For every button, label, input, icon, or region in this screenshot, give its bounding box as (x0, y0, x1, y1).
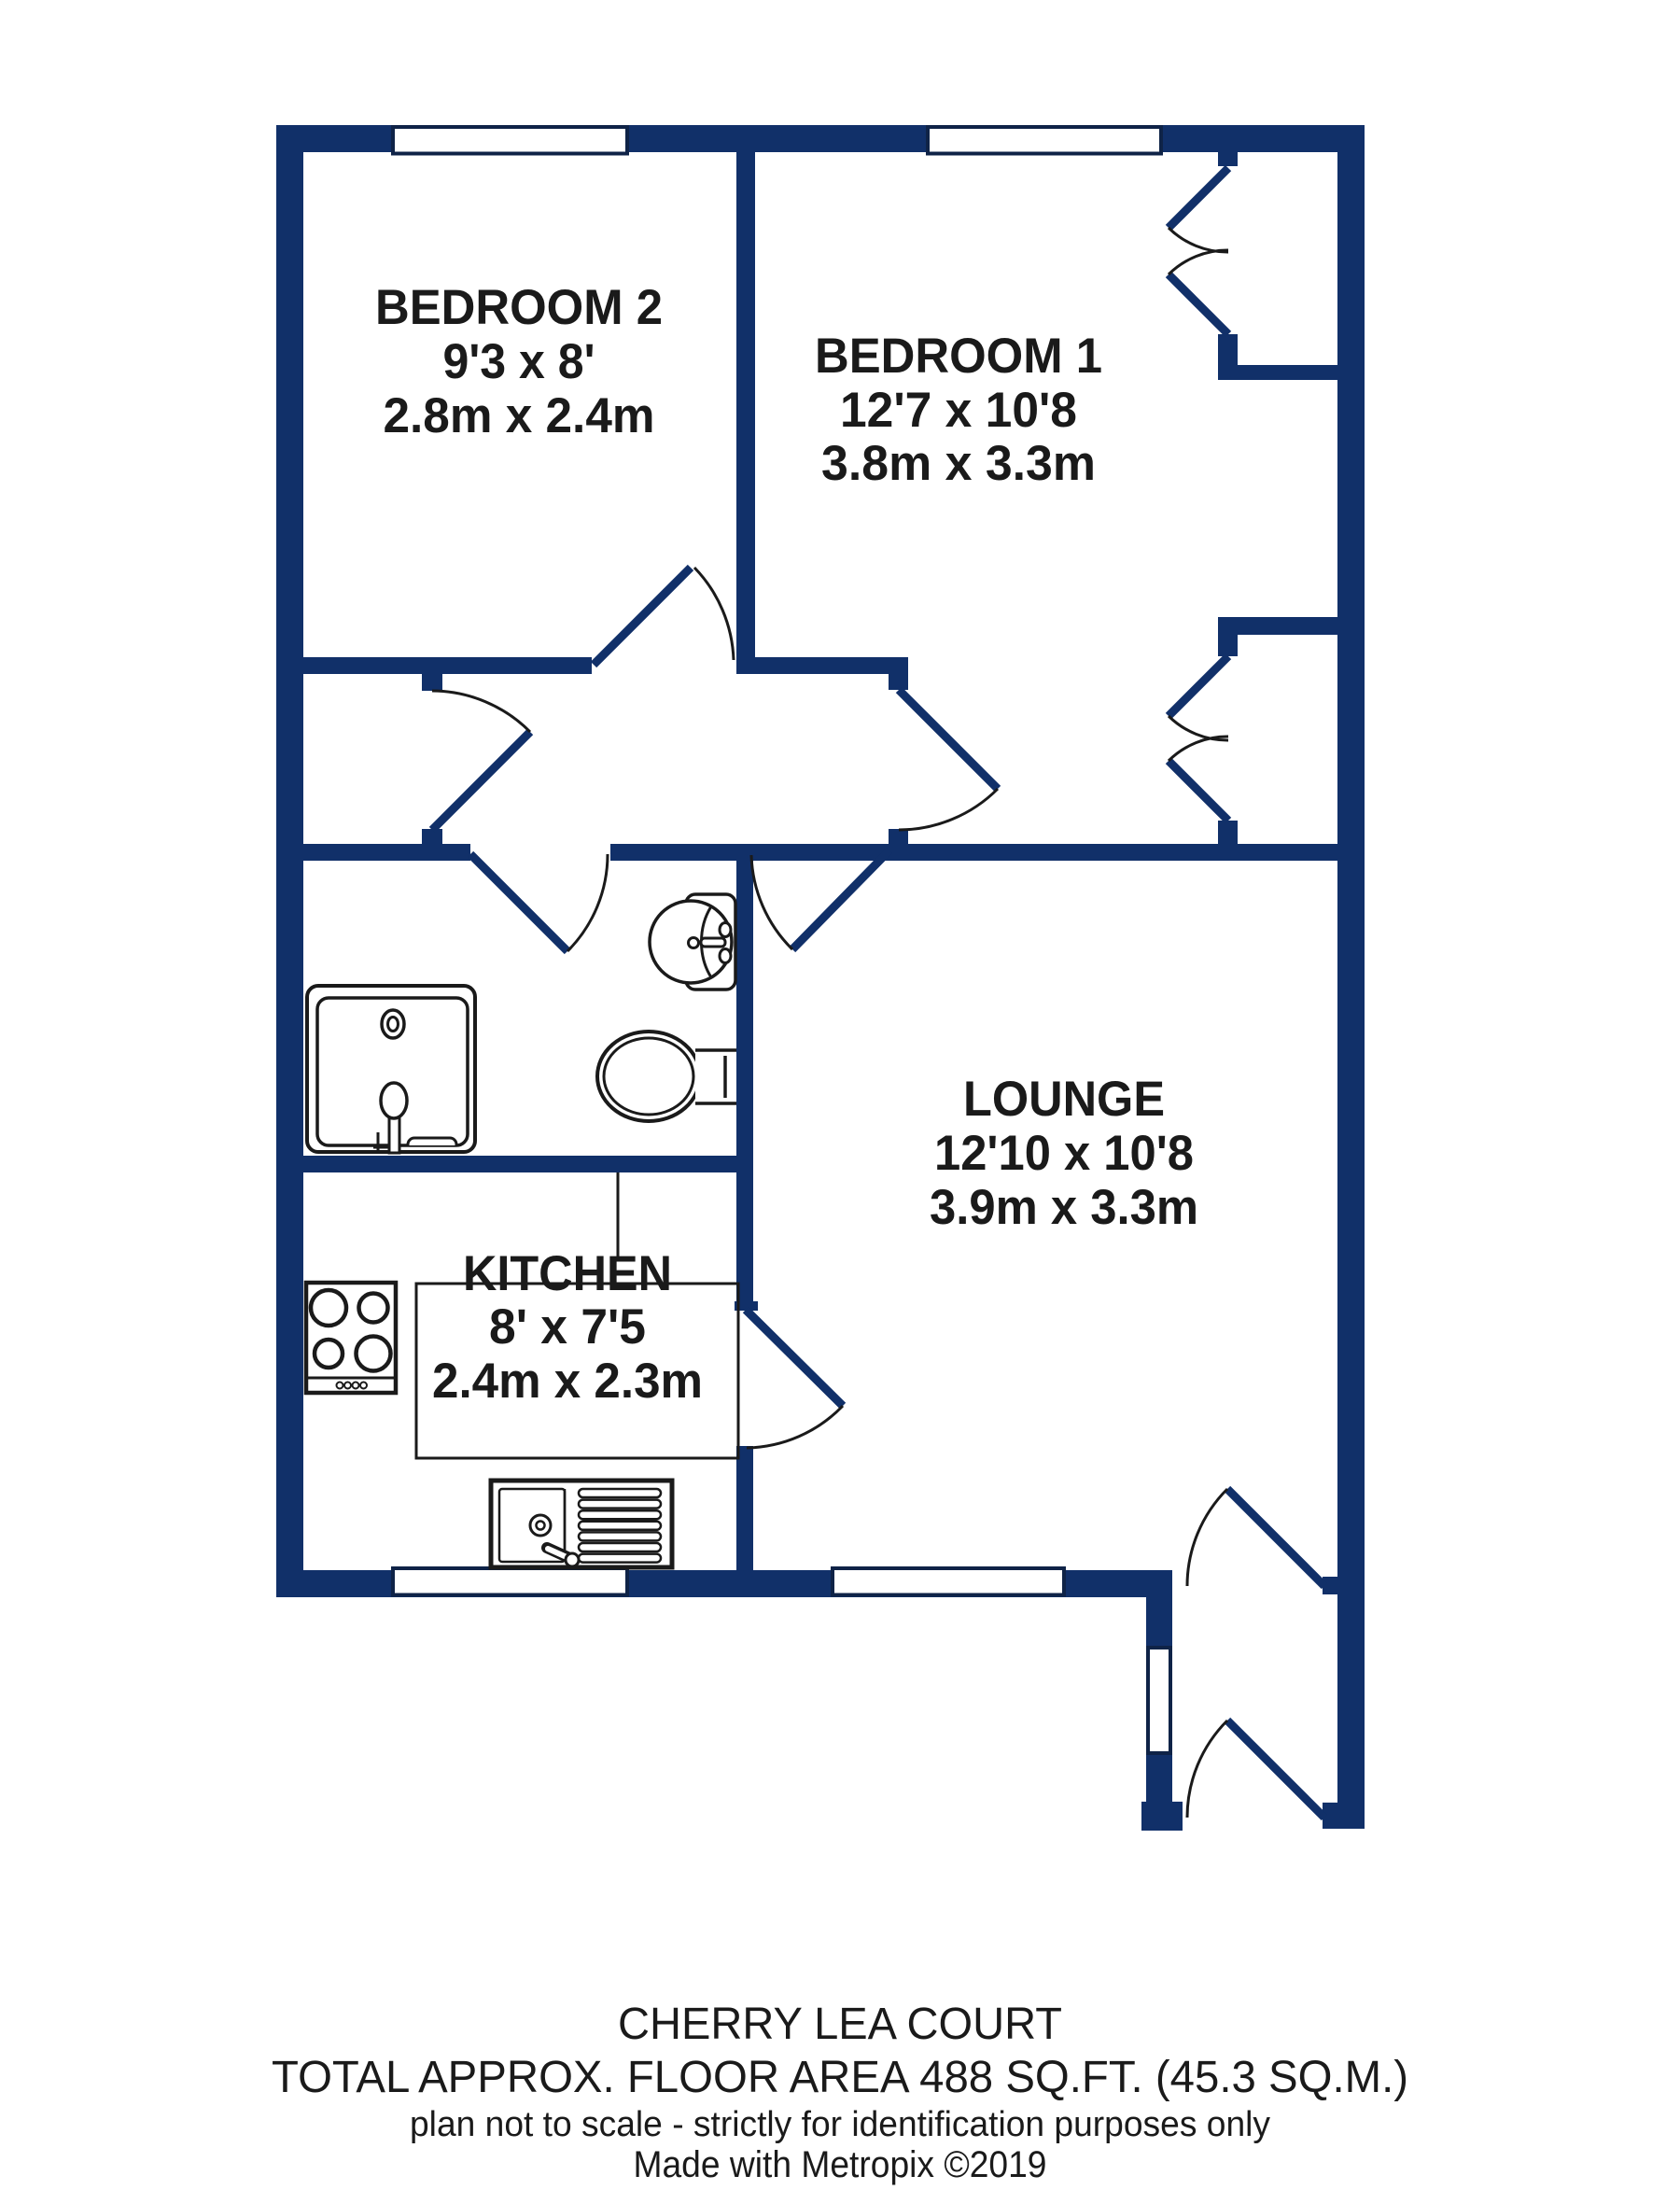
svg-text:12'7 x 10'8: 12'7 x 10'8 (840, 383, 1077, 438)
svg-text:2.8m x 2.4m: 2.8m x 2.4m (384, 388, 655, 443)
svg-text:KITCHEN: KITCHEN (463, 1246, 672, 1301)
svg-text:TOTAL APPROX. FLOOR AREA 488 S: TOTAL APPROX. FLOOR AREA 488 SQ.FT. (45.… (272, 2053, 1408, 2102)
svg-text:3.8m x 3.3m: 3.8m x 3.3m (821, 436, 1096, 491)
svg-text:9'3 x 8': 9'3 x 8' (443, 334, 595, 389)
svg-text:8' x 7'5: 8' x 7'5 (489, 1299, 646, 1355)
svg-text:BEDROOM 2: BEDROOM 2 (375, 280, 663, 335)
svg-text:12'10 x 10'8: 12'10 x 10'8 (934, 1126, 1194, 1181)
svg-text:LOUNGE: LOUNGE (963, 1072, 1165, 1127)
svg-text:plan not to scale - strictly f: plan not to scale - strictly for identif… (410, 2105, 1270, 2144)
svg-text:3.9m x 3.3m: 3.9m x 3.3m (930, 1180, 1198, 1235)
svg-text:CHERRY LEA COURT: CHERRY LEA COURT (618, 2000, 1062, 2049)
svg-text:BEDROOM 1: BEDROOM 1 (815, 329, 1102, 384)
svg-text:Made with Metropix ©2019: Made with Metropix ©2019 (634, 2144, 1047, 2185)
svg-text:2.4m x 2.3m: 2.4m x 2.3m (432, 1354, 703, 1409)
